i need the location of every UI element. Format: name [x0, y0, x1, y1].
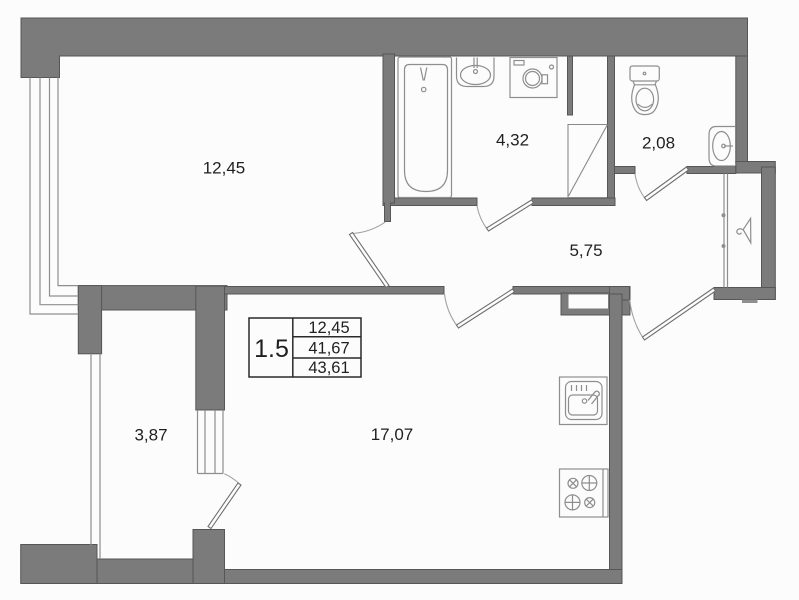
- svg-text:5,75: 5,75: [569, 241, 602, 260]
- svg-text:12,45: 12,45: [308, 319, 349, 337]
- svg-text:17,07: 17,07: [371, 425, 414, 444]
- svg-text:4,32: 4,32: [496, 131, 529, 150]
- svg-text:41,67: 41,67: [308, 340, 349, 358]
- svg-text:3,87: 3,87: [134, 426, 167, 445]
- svg-text:1.5: 1.5: [254, 335, 289, 363]
- svg-text:12,45: 12,45: [203, 159, 246, 178]
- svg-text:43,61: 43,61: [308, 359, 349, 377]
- svg-text:2,08: 2,08: [642, 134, 675, 153]
